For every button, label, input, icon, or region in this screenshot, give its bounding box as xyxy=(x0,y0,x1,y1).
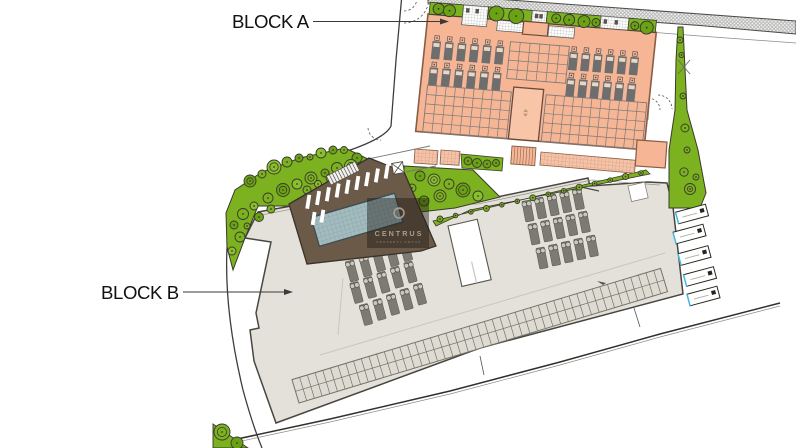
svg-text:PROPERTY GROUP: PROPERTY GROUP xyxy=(376,240,421,244)
svg-text:BLOCK B: BLOCK B xyxy=(101,282,179,303)
svg-text:BLOCK A: BLOCK A xyxy=(232,11,310,32)
svg-text:CENTRUS: CENTRUS xyxy=(375,229,424,238)
